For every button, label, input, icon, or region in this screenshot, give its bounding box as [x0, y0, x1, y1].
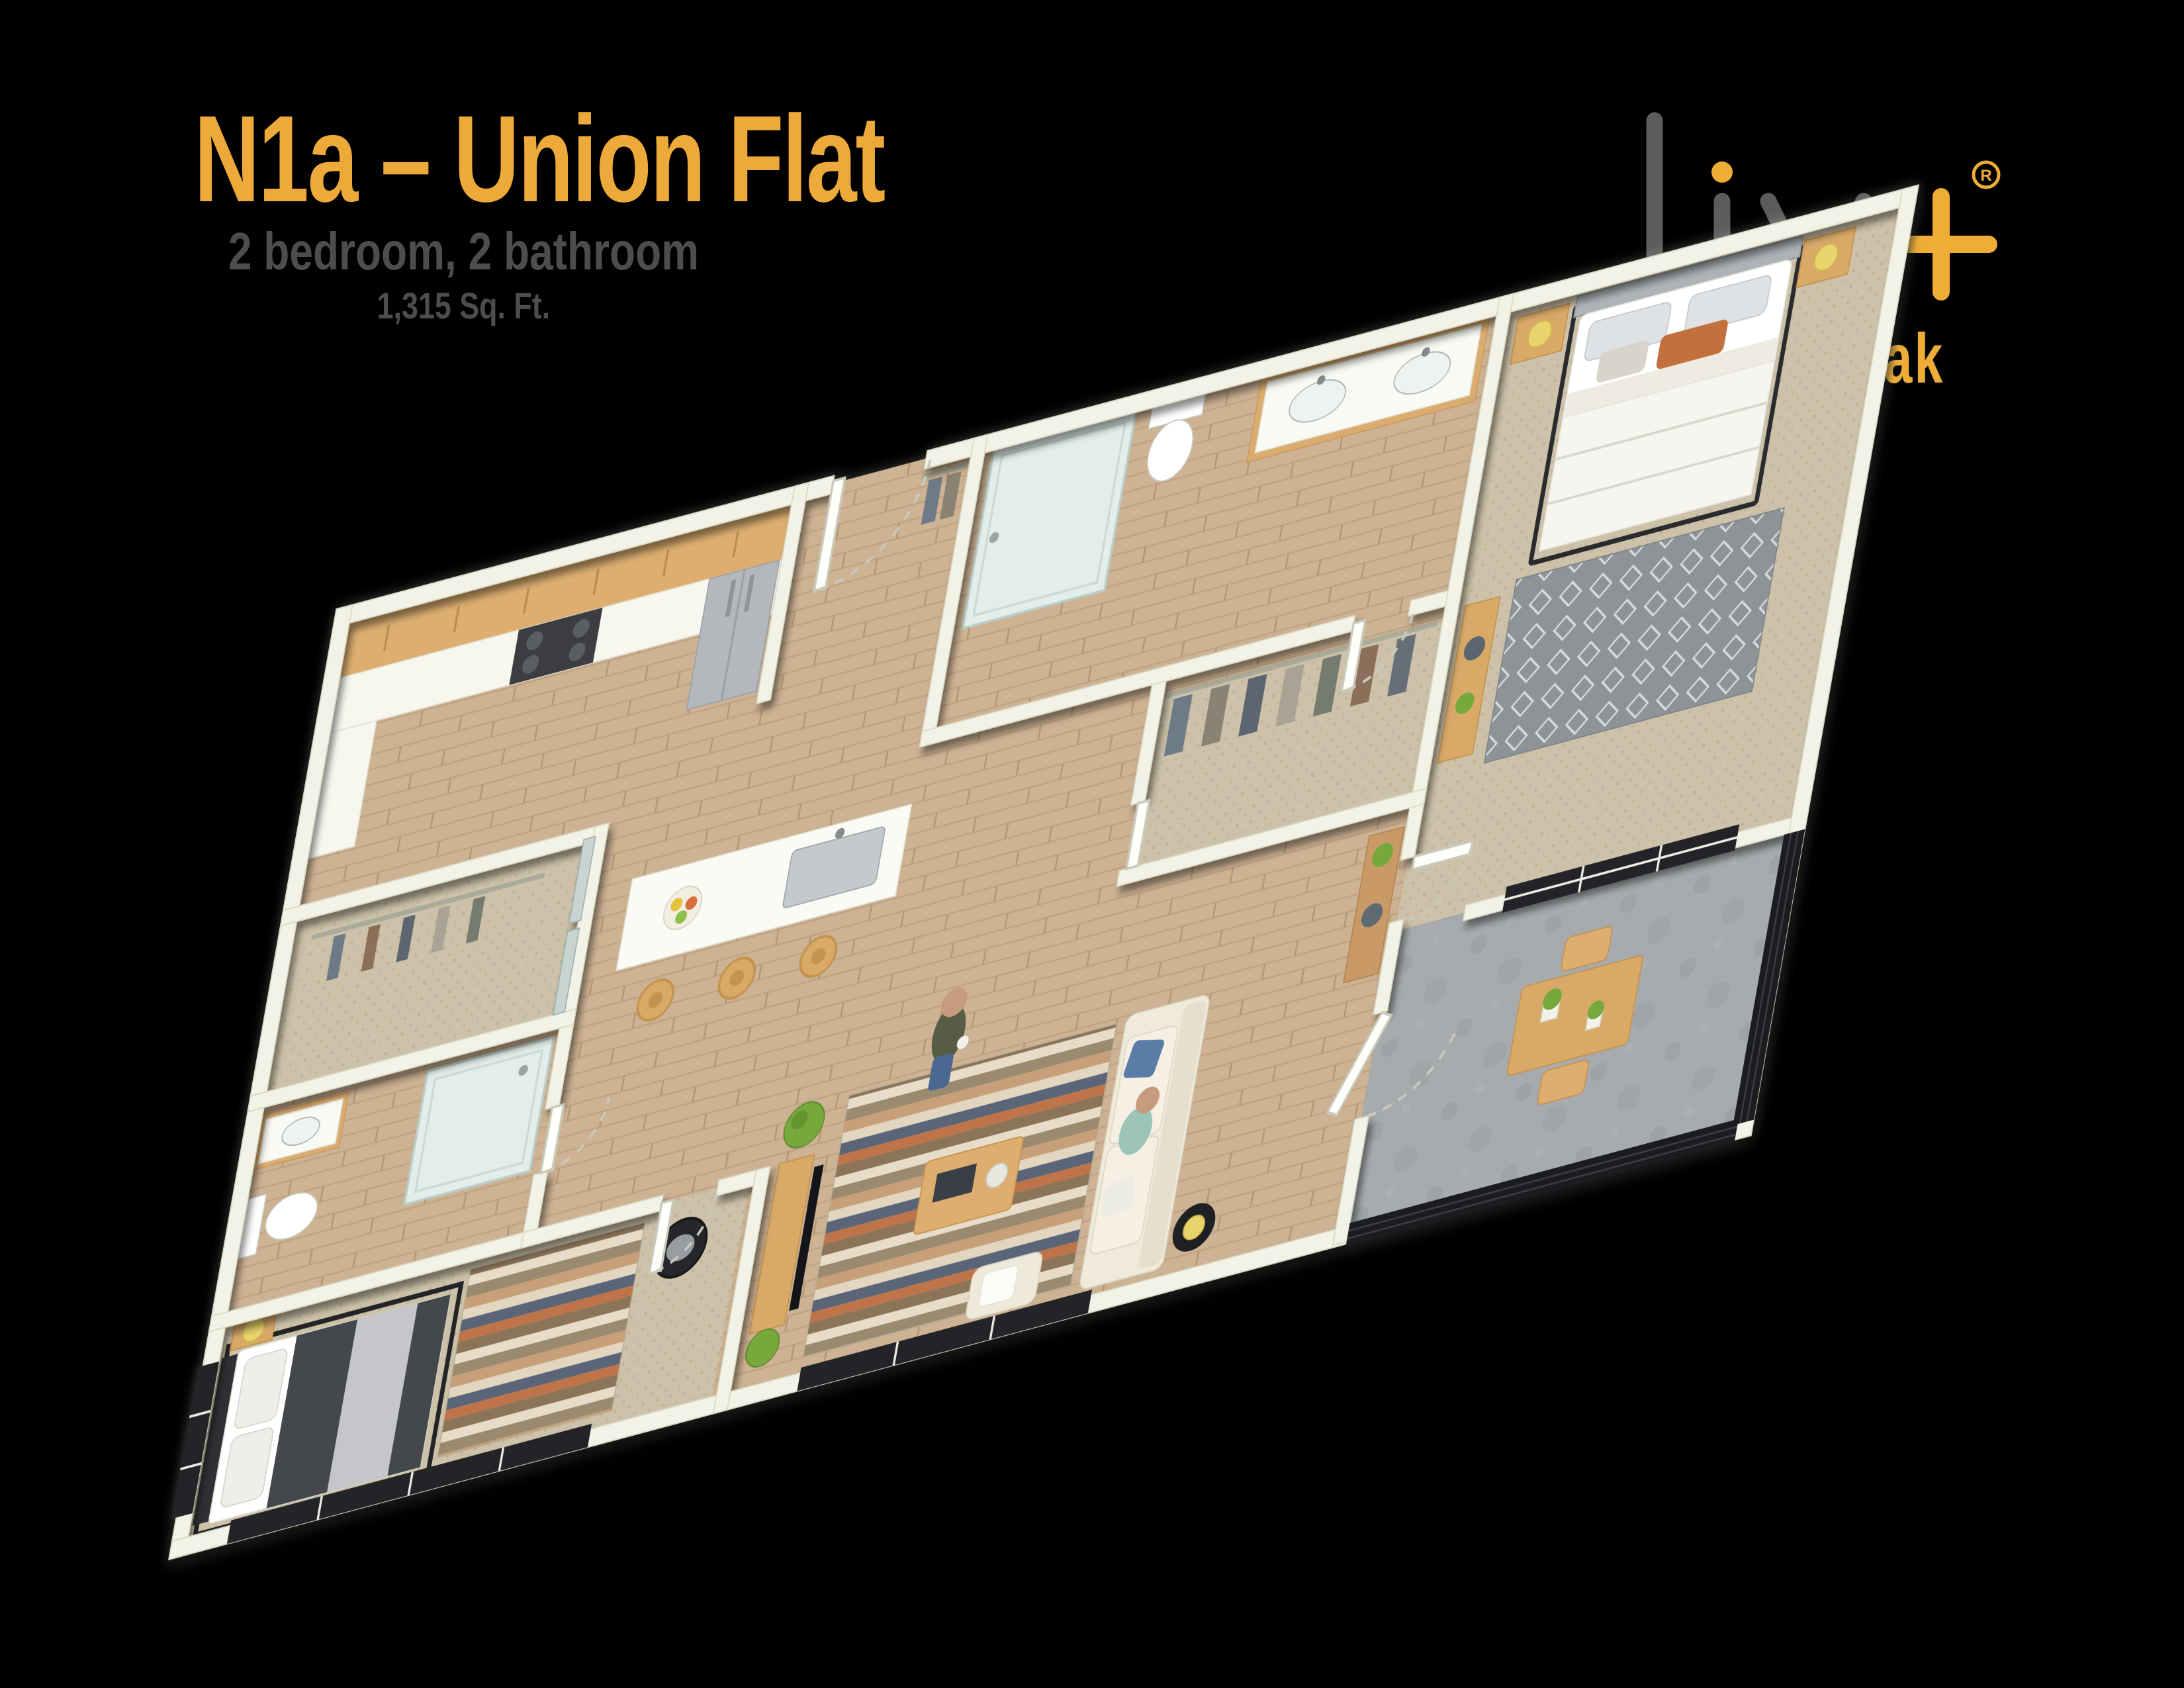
floor-plan-poster: N1a – Union Flat 2 bedroom, 2 bathroom 1…: [0, 0, 2184, 1688]
page-title: N1a – Union Flat: [73, 98, 854, 221]
registered-letter: R: [1980, 167, 1991, 185]
plan-subtitle: 2 bedroom, 2 bathroom: [73, 225, 854, 278]
plan-area: 1,315 Sq. Ft.: [73, 287, 854, 324]
registered-mark-icon: R: [1974, 162, 1999, 187]
floorplan-3d-render: [142, 153, 1946, 1584]
i-dot: [1711, 162, 1733, 183]
plan-name: N1a – Union Flat: [194, 98, 884, 221]
header: N1a – Union Flat 2 bedroom, 2 bathroom 1…: [73, 98, 854, 324]
